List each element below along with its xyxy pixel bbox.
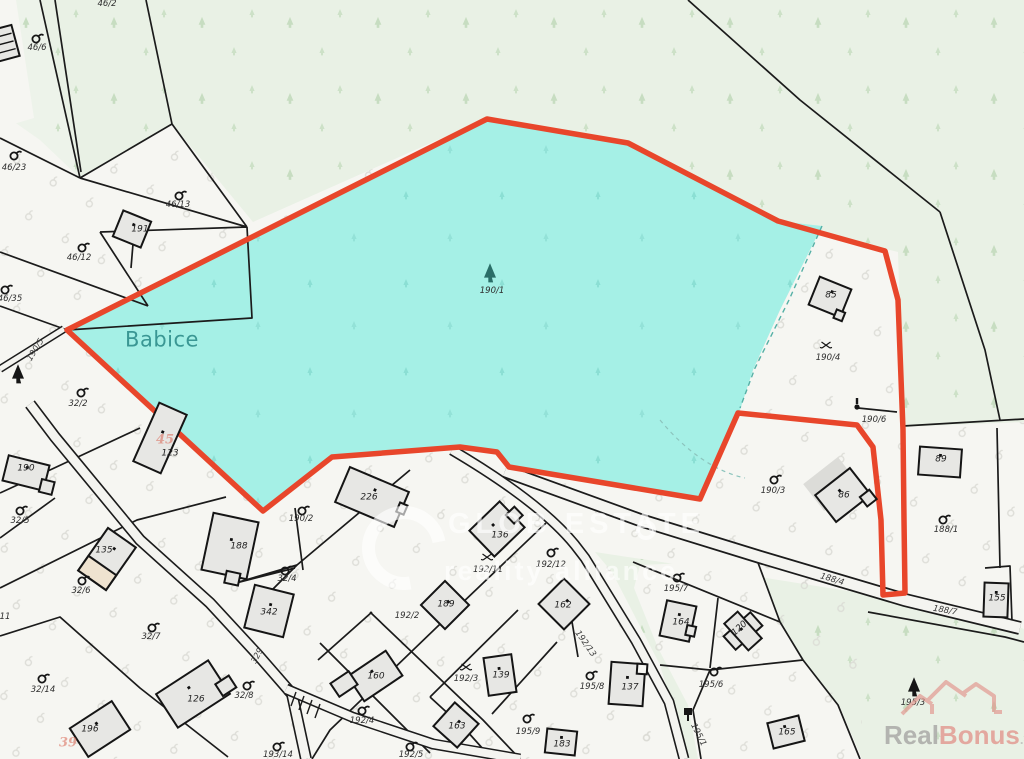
cadastral-map-viewport[interactable]: 46/246/646/2346/1346/1246/35191190/5Babi… [0, 0, 1024, 759]
cadastral-map-canvas [0, 0, 1024, 759]
